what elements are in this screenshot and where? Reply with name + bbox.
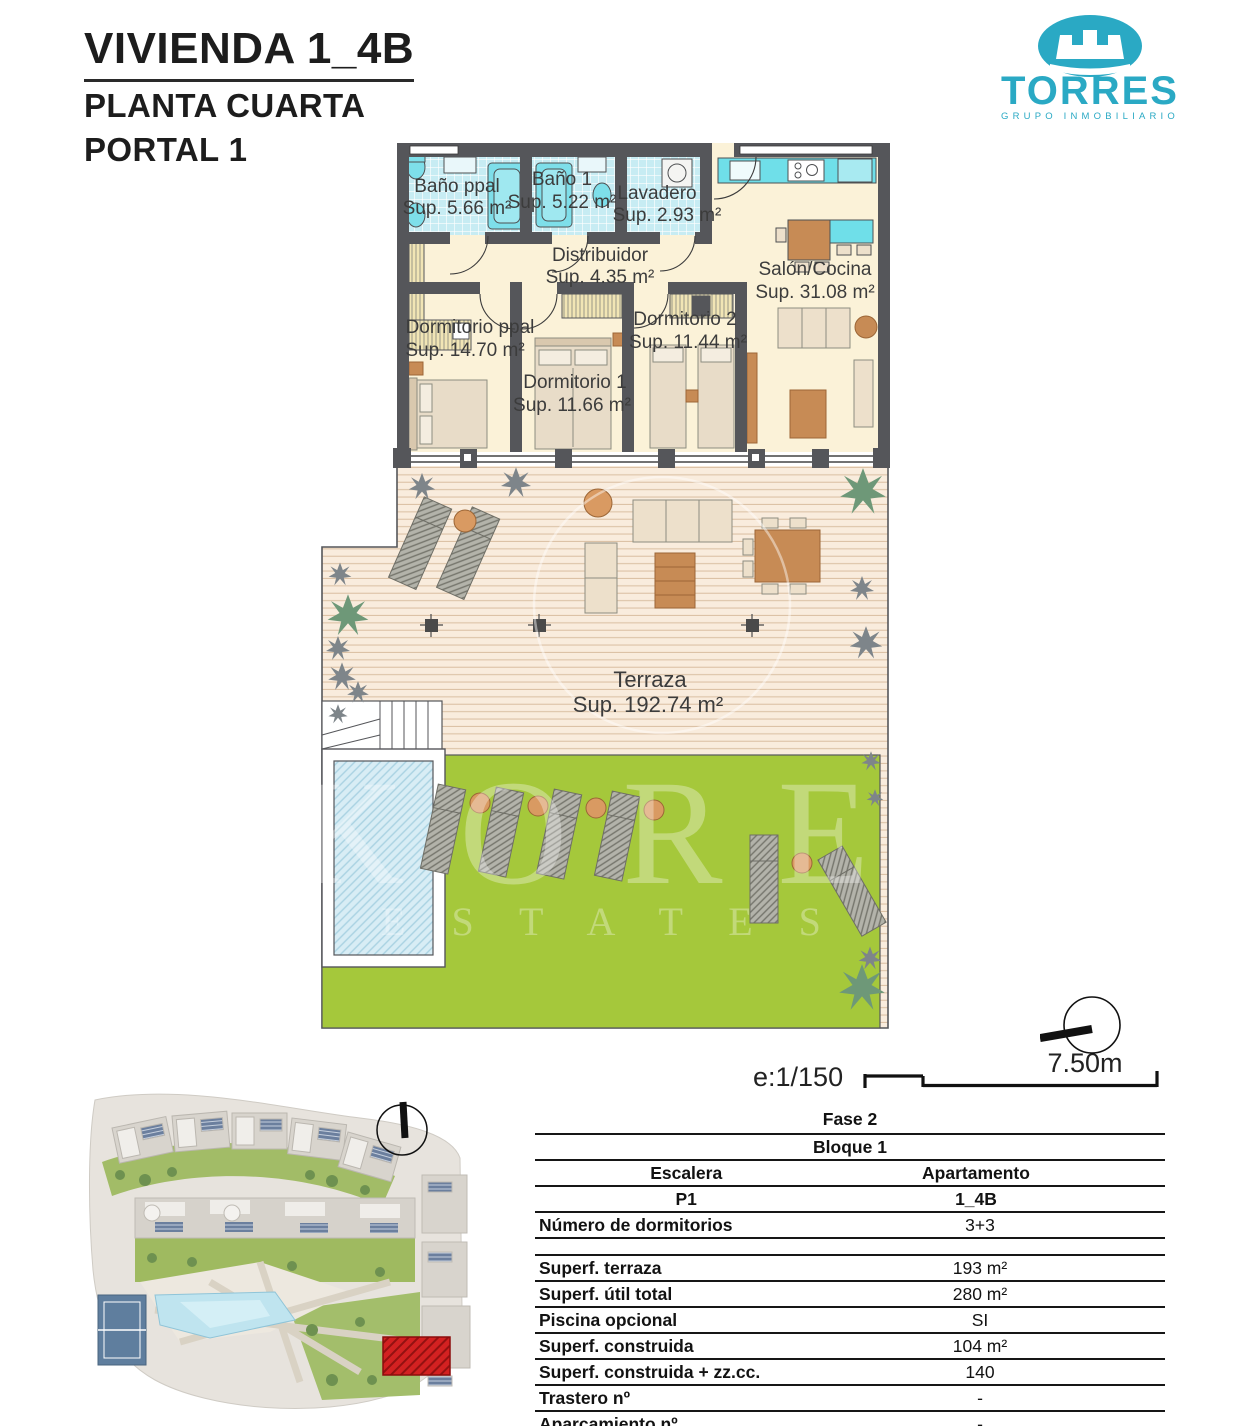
logo-tagline: GRUPO INMOBILIARIO: [1001, 111, 1179, 122]
room-label-terraza: Terraza: [613, 667, 687, 692]
row-label: Trastero nº: [535, 1388, 841, 1409]
watermark-line1: KORE: [310, 750, 900, 916]
scale-text: e:1/150: [753, 1062, 843, 1092]
table-row-trastero: Trastero nº -: [535, 1386, 1165, 1412]
stairs: [322, 701, 442, 753]
north-compass-icon: [1040, 985, 1150, 1070]
room-label-distribuidor: Distribuidor: [552, 245, 649, 266]
room-sup-dorm-ppal: Sup. 14.70 m²: [405, 340, 524, 361]
room-sup-bano-ppal: Sup. 5.66 m²: [403, 198, 512, 219]
table-row-fase: Fase 2: [535, 1103, 1165, 1135]
room-sup-salon-cocina: Sup. 31.08 m²: [755, 282, 874, 303]
fase-value: Fase 2: [823, 1109, 877, 1130]
table-row-terraza: Superf. terraza 193 m²: [535, 1256, 1165, 1282]
escalera-value: P1: [535, 1189, 837, 1210]
watermark-line2: E S T A T E S: [381, 899, 839, 944]
page-title: VIVIENDA 1_4B: [84, 24, 414, 82]
row-value: 280 m²: [841, 1284, 1118, 1305]
floor-plan: KORE E S T A T E S Baño ppal Sup. 5.66 m…: [310, 135, 900, 1040]
table-row-construida: Superf. construida 104 m²: [535, 1334, 1165, 1360]
row-label: Superf. construida: [535, 1336, 841, 1357]
row-value: -: [841, 1388, 1118, 1409]
row-value: 140: [841, 1362, 1118, 1383]
subtitle-planta: PLANTA CUARTA: [84, 85, 414, 126]
row-label: Superf. terraza: [535, 1258, 841, 1279]
page: VIVIENDA 1_4B PLANTA CUARTA PORTAL 1 TOR…: [0, 0, 1240, 1426]
room-label-lavadero: Lavadero: [617, 183, 696, 204]
room-label-bano-1: Baño 1: [532, 169, 592, 190]
table-row-headers: Escalera Apartamento: [535, 1161, 1165, 1187]
site-buildings-middle: [135, 1198, 415, 1238]
table-row-ids: P1 1_4B: [535, 1187, 1165, 1213]
row-value: -: [841, 1414, 1118, 1426]
bloque-value: Bloque 1: [813, 1137, 887, 1158]
room-sup-dorm-2: Sup. 11.44 m²: [629, 332, 747, 353]
spec-table: Fase 2 Bloque 1 Escalera Apartamento P1 …: [535, 1103, 1165, 1426]
row-value: 104 m²: [841, 1336, 1118, 1357]
escalera-header: Escalera: [535, 1163, 837, 1184]
table-row-dormitorios: Número de dormitorios 3+3: [535, 1213, 1165, 1239]
row-value: SI: [841, 1310, 1118, 1331]
table-row-piscina: Piscina opcional SI: [535, 1308, 1165, 1334]
row-value: 3+3: [841, 1215, 1118, 1236]
row-value: 193 m²: [841, 1258, 1118, 1279]
apartamento-header: Apartamento: [837, 1163, 1114, 1184]
row-label: Superf. construida + zz.cc.: [535, 1362, 841, 1383]
table-row-util-total: Superf. útil total 280 m²: [535, 1282, 1165, 1308]
site-plan-highlight: [383, 1337, 450, 1375]
logo-name: TORRES: [1001, 69, 1179, 113]
room-sup-dorm-1: Sup. 11.66 m²: [513, 395, 631, 416]
room-sup-terraza: Sup. 192.74 m²: [573, 692, 723, 717]
room-label-salon-cocina: Salón/Cocina: [758, 259, 871, 280]
room-label-dorm-1: Dormitorio 1: [523, 372, 626, 393]
room-label-bano-ppal: Baño ppal: [414, 176, 500, 197]
table-row-aparcamiento: Aparcamiento nº -: [535, 1412, 1165, 1426]
site-plan: [60, 1080, 480, 1426]
torres-logo: TORRES GRUPO INMOBILIARIO: [990, 12, 1190, 129]
table-row-construida-zzcc: Superf. construida + zz.cc. 140: [535, 1360, 1165, 1386]
row-label: Piscina opcional: [535, 1310, 841, 1331]
row-label: Aparcamiento nº: [535, 1414, 841, 1426]
room-label-dorm-ppal: Dormitorio ppal: [406, 317, 535, 338]
table-row-bloque: Bloque 1: [535, 1135, 1165, 1161]
room-sup-bano-1: Sup. 5.22 m²: [508, 192, 617, 213]
apartamento-value: 1_4B: [837, 1189, 1114, 1210]
room-label-dorm-2: Dormitorio 2: [633, 309, 736, 330]
row-label: Número de dormitorios: [535, 1215, 841, 1236]
crown-icon: TORRES GRUPO INMOBILIARIO: [990, 12, 1190, 124]
table-spacer: [535, 1239, 1165, 1256]
room-sup-lavadero: Sup. 2.93 m²: [613, 205, 722, 226]
row-label: Superf. útil total: [535, 1284, 841, 1305]
room-sup-distribuidor: Sup. 4.35 m²: [546, 267, 655, 288]
